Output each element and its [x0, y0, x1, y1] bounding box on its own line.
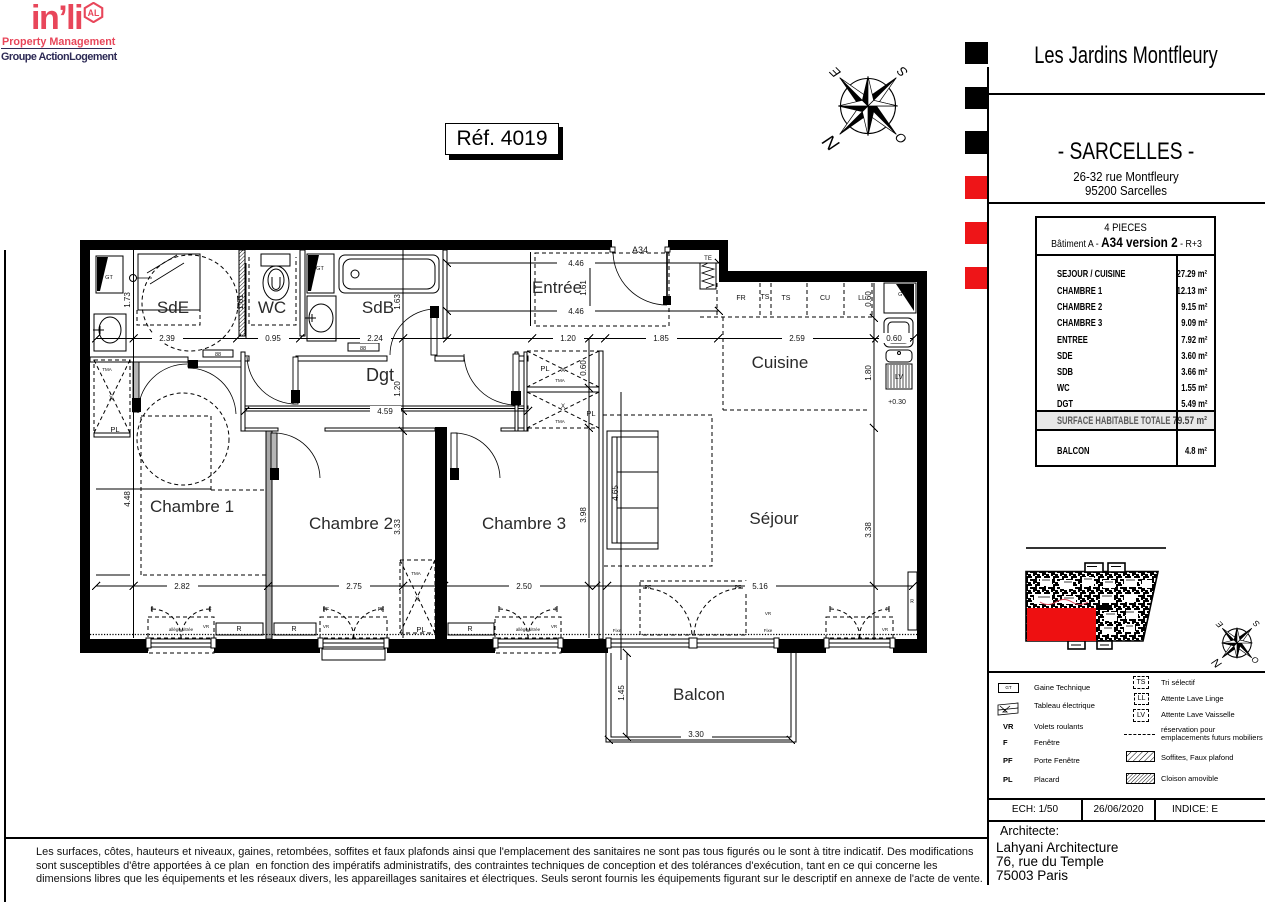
svg-text:WC: WC [258, 298, 286, 317]
svg-text:1.20: 1.20 [560, 334, 576, 343]
svg-text:0.60: 0.60 [886, 334, 902, 343]
svg-text:R: R [291, 626, 296, 633]
svg-text:R: R [467, 626, 472, 633]
svg-text:Entrée: Entrée [532, 278, 582, 297]
svg-text:4.46: 4.46 [568, 307, 584, 316]
svg-text:88: 88 [360, 346, 366, 352]
svg-text:2.82: 2.82 [174, 582, 190, 591]
svg-text:PL: PL [540, 364, 549, 373]
svg-text:PF: PF [735, 585, 741, 591]
svg-text:GT: GT [316, 266, 324, 272]
svg-text:allège vitrée: allège vitrée [169, 627, 194, 632]
svg-text:VR: VR [882, 627, 889, 632]
svg-text:1.63: 1.63 [393, 294, 402, 310]
svg-text:LL: LL [858, 295, 866, 302]
svg-text:2.50: 2.50 [516, 582, 532, 591]
svg-text:F: F [150, 607, 153, 613]
svg-text:F: F [498, 607, 501, 613]
svg-text:PF: PF [378, 607, 384, 613]
svg-text:X: X [109, 396, 113, 402]
svg-text:SdB: SdB [362, 298, 394, 317]
svg-text:88: 88 [215, 352, 221, 358]
svg-text:4.46: 4.46 [568, 259, 584, 268]
svg-text:F: F [208, 607, 211, 613]
svg-text:F: F [554, 607, 557, 613]
svg-text:TE: TE [704, 256, 712, 262]
svg-text:S: S [1250, 618, 1261, 629]
svg-text:S: S [894, 63, 911, 80]
svg-text:X: X [415, 597, 419, 603]
svg-text:TMA: TMA [555, 378, 565, 383]
svg-text:N: N [1210, 655, 1225, 670]
svg-text:Cuisine: Cuisine [752, 353, 809, 372]
svg-text:PF: PF [645, 585, 651, 591]
svg-text:3.38: 3.38 [864, 522, 873, 538]
svg-text:2.75: 2.75 [346, 582, 362, 591]
svg-text:R: R [236, 626, 241, 633]
svg-text:PL: PL [416, 625, 425, 634]
svg-text:+0.30: +0.30 [888, 399, 906, 406]
svg-text:2.24: 2.24 [367, 334, 383, 343]
svg-text:Chambre 2: Chambre 2 [309, 514, 393, 533]
svg-text:5.16: 5.16 [752, 582, 768, 591]
svg-text:0.95: 0.95 [265, 334, 281, 343]
svg-text:Chambre 1: Chambre 1 [150, 497, 234, 516]
svg-text:VR: VR [323, 624, 330, 629]
svg-text:1.20: 1.20 [393, 381, 402, 397]
svg-text:TS: TS [782, 295, 791, 302]
svg-text:PL: PL [586, 409, 595, 418]
svg-text:1.61: 1.61 [236, 294, 245, 310]
svg-text:4.65: 4.65 [611, 485, 620, 501]
svg-text:Fixe: Fixe [764, 628, 773, 633]
svg-text:GT: GT [105, 275, 113, 281]
svg-text:E: E [1214, 619, 1225, 630]
svg-text:1.73: 1.73 [123, 292, 132, 308]
svg-text:Séjour: Séjour [749, 509, 798, 528]
svg-text:PF: PF [323, 607, 329, 613]
svg-text:X: X [561, 404, 565, 410]
svg-text:LV: LV [895, 374, 903, 381]
svg-text:2.39: 2.39 [159, 334, 175, 343]
svg-text:Balcon: Balcon [673, 685, 725, 704]
svg-text:3.33: 3.33 [393, 519, 402, 535]
svg-text:CU: CU [820, 295, 830, 302]
svg-text:1.85: 1.85 [653, 334, 669, 343]
svg-text:1.45: 1.45 [617, 685, 626, 701]
svg-text:TMA: TMA [102, 367, 112, 372]
svg-text:F: F [885, 607, 888, 613]
svg-text:Dgt: Dgt [366, 365, 394, 385]
svg-text:VR: VR [551, 624, 558, 629]
svg-text:Chambre 3: Chambre 3 [482, 514, 566, 533]
svg-text:1.80: 1.80 [864, 365, 873, 381]
svg-text:SdE: SdE [157, 298, 189, 317]
svg-text:2.59: 2.59 [789, 334, 805, 343]
svg-text:3.30: 3.30 [688, 730, 704, 739]
svg-text:TMA: TMA [411, 571, 421, 576]
svg-text:A34: A34 [632, 245, 648, 255]
svg-text:VR: VR [765, 611, 772, 616]
svg-text:TS: TS [761, 294, 770, 301]
svg-text:TMA: TMA [555, 419, 565, 424]
svg-text:GT: GT [898, 292, 906, 298]
svg-text:4.59: 4.59 [377, 407, 393, 416]
svg-text:R: R [910, 599, 914, 605]
svg-text:Fixe: Fixe [613, 628, 622, 633]
svg-text:allège vitrée: allège vitrée [516, 627, 541, 632]
svg-text:PL: PL [110, 425, 119, 434]
svg-text:4.48: 4.48 [123, 491, 132, 507]
svg-text:3.98: 3.98 [579, 507, 588, 523]
svg-text:VR: VR [203, 624, 210, 629]
svg-text:0.60: 0.60 [579, 360, 588, 376]
svg-text:X: X [561, 368, 565, 374]
svg-text:FR: FR [736, 295, 745, 302]
svg-text:F: F [829, 607, 832, 613]
